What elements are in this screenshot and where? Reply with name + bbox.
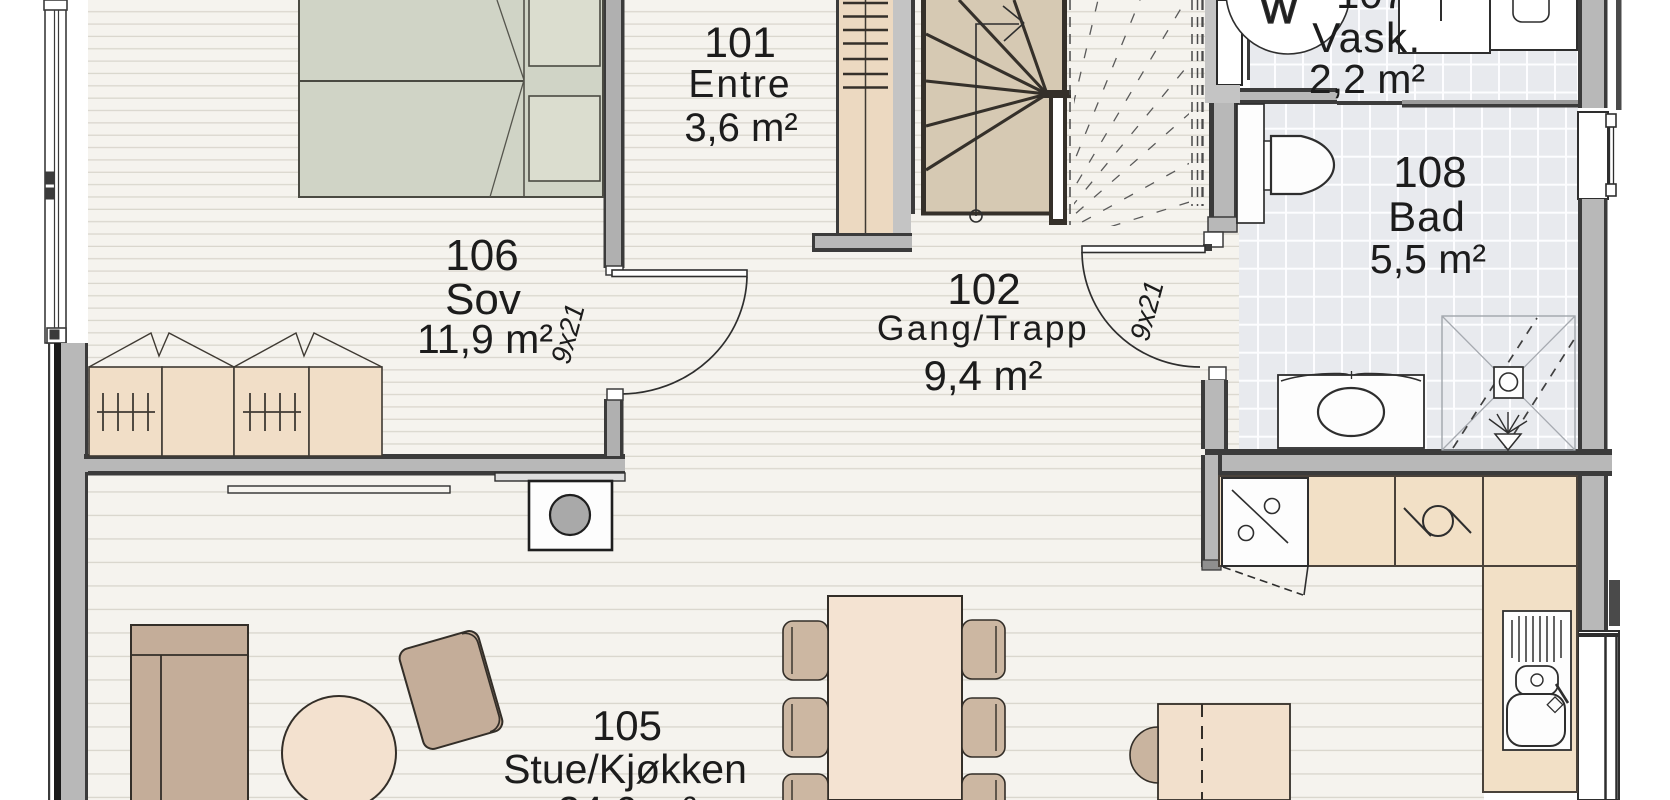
svg-text:Bad: Bad [1388, 193, 1466, 240]
svg-text:108: 108 [1393, 148, 1466, 197]
svg-text:5,5 m²: 5,5 m² [1370, 236, 1486, 282]
svg-text:9,4 m²: 9,4 m² [923, 352, 1042, 399]
svg-text:105: 105 [592, 702, 662, 749]
svg-text:24,6 m²: 24,6 m² [558, 788, 697, 800]
svg-text:101: 101 [704, 19, 776, 67]
svg-text:Entre: Entre [688, 63, 791, 106]
svg-text:Gang/Trapp: Gang/Trapp [877, 308, 1089, 348]
svg-text:11,9 m²: 11,9 m² [417, 316, 553, 362]
svg-text:102: 102 [947, 265, 1020, 314]
svg-text:Stue/Kjøkken: Stue/Kjøkken [503, 746, 747, 792]
svg-text:Vask.: Vask. [1312, 14, 1421, 61]
svg-text:106: 106 [445, 231, 518, 280]
svg-text:W: W [1260, 0, 1298, 32]
svg-text:2,2 m²: 2,2 m² [1309, 56, 1425, 102]
svg-text:3,6 m²: 3,6 m² [684, 106, 797, 150]
